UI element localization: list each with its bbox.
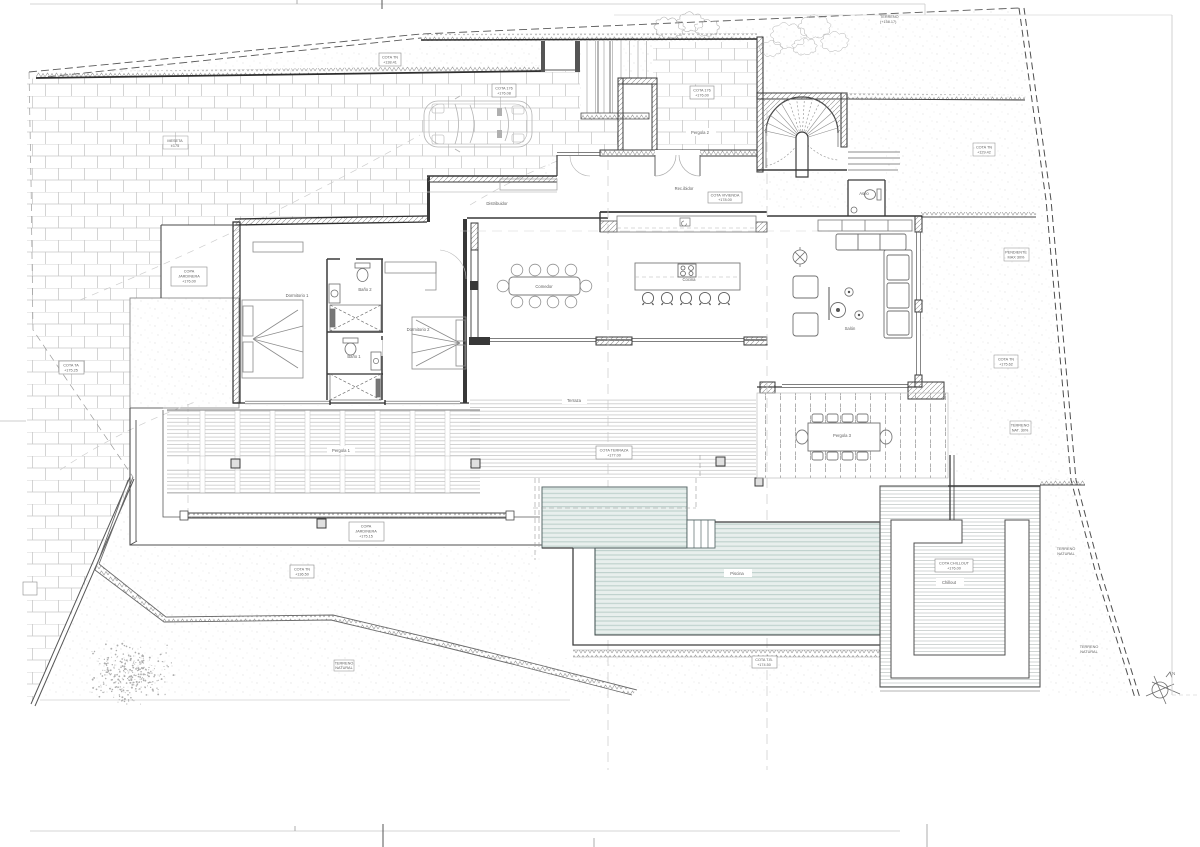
svg-text:NATURAL: NATURAL (335, 666, 352, 670)
svg-text:(+158.17): (+158.17) (880, 20, 897, 24)
svg-text:+175.62: +175.62 (999, 363, 1013, 367)
svg-text:NATURAL: NATURAL (1080, 650, 1097, 654)
svg-text:COTA TA: COTA TA (63, 364, 79, 368)
svg-text:+175.15: +175.15 (359, 535, 373, 539)
svg-text:PENDIENTE: PENDIENTE (1005, 251, 1027, 255)
svg-text:COTA 176: COTA 176 (495, 87, 512, 91)
svg-text:Cocina: Cocina (682, 277, 696, 282)
svg-text:NATURAL: NATURAL (1057, 552, 1074, 556)
svg-text:Aseo: Aseo (859, 191, 869, 196)
svg-text:Pergola 2: Pergola 2 (691, 130, 710, 135)
svg-text:Comedor: Comedor (535, 284, 553, 289)
svg-text:+176.00: +176.00 (947, 567, 961, 571)
svg-text:Salón: Salón (845, 326, 856, 331)
svg-text:NAT. 30%: NAT. 30% (1012, 429, 1029, 433)
svg-text:Piscina: Piscina (730, 571, 744, 576)
svg-text:COTA TN: COTA TN (976, 146, 992, 150)
svg-text:+136.50: +136.50 (295, 573, 309, 577)
svg-text:COTA TN: COTA TN (998, 358, 1014, 362)
svg-text:COTA TN: COTA TN (382, 56, 398, 60)
svg-text:COPA: COPA (361, 525, 372, 529)
svg-text:COTA TERRAZA: COTA TERRAZA (600, 449, 629, 453)
svg-text:Rec.ibidor: Rec.ibidor (675, 186, 694, 191)
svg-text:Baño 1: Baño 1 (347, 354, 361, 359)
svg-text:+177.00: +177.00 (607, 454, 621, 458)
svg-text:Dormitorio 1: Dormitorio 1 (286, 293, 309, 298)
svg-text:COTA 176: COTA 176 (693, 89, 710, 93)
svg-text:+176.08: +176.08 (497, 92, 511, 96)
svg-text:TERRENO: TERRENO (1057, 547, 1076, 551)
svg-text:Baño 2: Baño 2 (358, 287, 372, 292)
svg-text:Chillout: Chillout (942, 580, 957, 585)
svg-text:Pergola 1: Pergola 1 (332, 448, 351, 453)
svg-text:MAX 30%: MAX 30% (1008, 256, 1026, 260)
svg-text:TERRENO: TERRENO (335, 662, 354, 666)
svg-text:Distribuidor: Distribuidor (486, 201, 508, 206)
svg-text:TERRENO: TERRENO (880, 15, 899, 19)
svg-text:TERRENO: TERRENO (1011, 424, 1030, 428)
svg-text:+176.00: +176.00 (695, 94, 709, 98)
svg-text:Pergola 3: Pergola 3 (833, 433, 852, 438)
svg-text:+129.42: +129.42 (977, 151, 991, 155)
svg-text:TERRENO: TERRENO (1080, 645, 1099, 649)
svg-text:+176.00: +176.00 (182, 280, 196, 284)
svg-text:N: N (1172, 671, 1175, 676)
svg-text:+138.41: +138.41 (383, 61, 397, 65)
svg-text:COTA CHILLOUT: COTA CHILLOUT (939, 562, 970, 566)
svg-text:±175: ±175 (171, 144, 179, 148)
svg-text:Dormitorio 2: Dormitorio 2 (407, 327, 430, 332)
svg-text:JARDINERA: JARDINERA (178, 275, 200, 279)
svg-text:+174.50: +174.50 (757, 663, 771, 667)
svg-text:COPA: COPA (184, 270, 195, 274)
svg-text:MESETA: MESETA (167, 139, 183, 143)
svg-text:JARDINERA: JARDINERA (355, 530, 377, 534)
svg-text:COTA VIVIENDA: COTA VIVIENDA (711, 194, 740, 198)
svg-text:+175.25: +175.25 (64, 369, 78, 373)
svg-text:COTA T.B.: COTA T.B. (755, 658, 773, 662)
svg-text:+178.00: +178.00 (718, 198, 732, 202)
svg-text:Terraza: Terraza (567, 398, 582, 403)
svg-text:COTA TN: COTA TN (294, 568, 310, 572)
